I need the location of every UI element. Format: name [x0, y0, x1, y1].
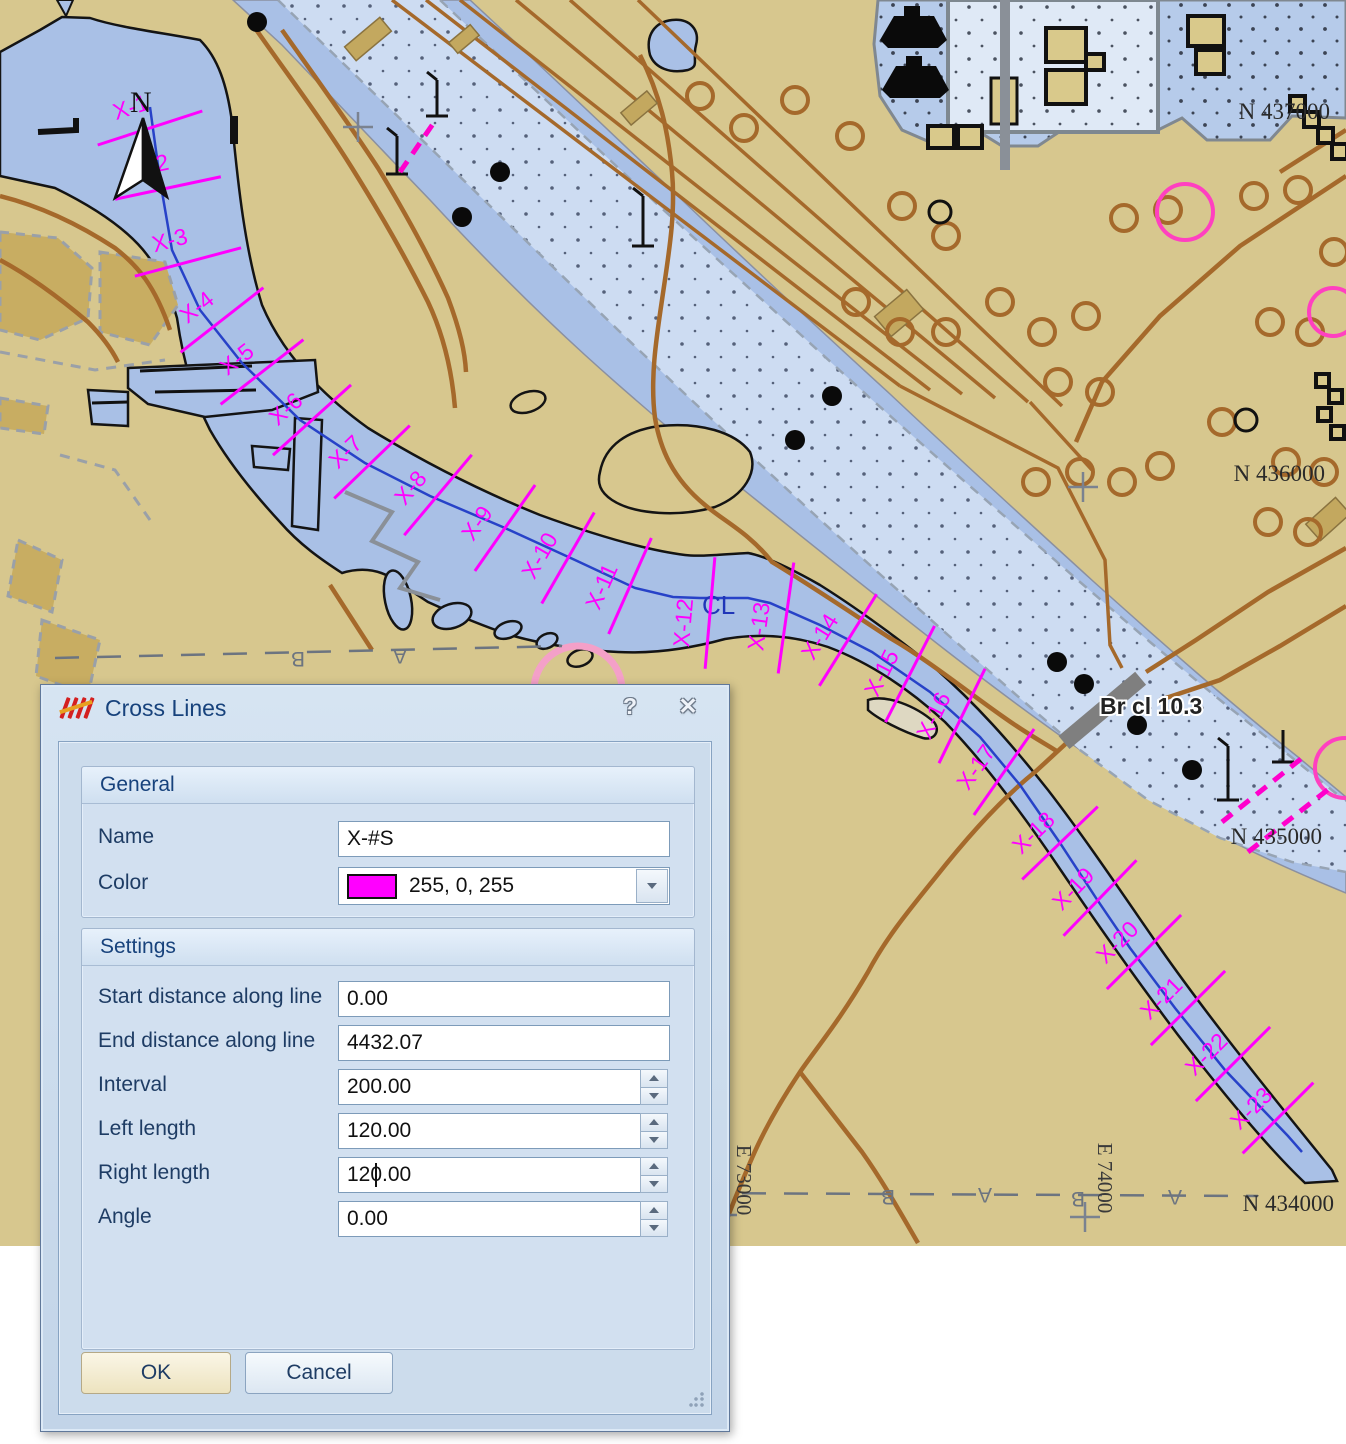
- ok-button[interactable]: OK: [81, 1352, 231, 1394]
- cancel-button[interactable]: Cancel: [245, 1352, 393, 1394]
- dialog-content: General Name Color 255, 0, 255 Settings …: [58, 741, 712, 1415]
- end-distance-input[interactable]: [339, 1029, 669, 1057]
- general-group: General Name Color 255, 0, 255: [81, 766, 695, 918]
- boundary-letter: B: [881, 1185, 895, 1208]
- dialog-title: Cross Lines: [105, 695, 226, 722]
- cross-lines-dialog: Cross Lines ? ✕ General Name Color 255, …: [40, 684, 730, 1432]
- left-length-input[interactable]: [339, 1117, 641, 1145]
- crossline-label: X-12: [668, 597, 698, 648]
- name-input[interactable]: [339, 825, 669, 853]
- bridge-clearance-label: Br cl 10.3: [1100, 693, 1202, 719]
- northing-grid-label: N 434000: [1243, 1191, 1334, 1216]
- name-row: Name: [82, 821, 694, 855]
- spin-up-icon: [649, 1119, 659, 1125]
- color-value: 255, 0, 255: [409, 874, 635, 898]
- spin-up-icon: [649, 1207, 659, 1213]
- boundary-letter: B: [291, 647, 305, 670]
- dialog-titlebar[interactable]: Cross Lines ? ✕: [41, 685, 729, 731]
- right-length-spinner[interactable]: [640, 1157, 668, 1193]
- easting-grid-label: E 74000: [1093, 1143, 1117, 1214]
- centerline-label: CL: [702, 590, 735, 620]
- color-swatch: [347, 874, 397, 899]
- name-field-wrap: [338, 821, 670, 857]
- easting-grid-label: E 73000: [732, 1145, 756, 1216]
- north-arrow-label: N: [130, 86, 152, 119]
- color-label: Color: [98, 871, 148, 895]
- color-row: Color 255, 0, 255: [82, 867, 694, 901]
- interval-input[interactable]: [339, 1073, 641, 1101]
- spin-down-icon: [649, 1181, 659, 1187]
- northing-grid-label: N 435000: [1231, 824, 1322, 849]
- spin-up-icon: [649, 1163, 659, 1169]
- boundary-letter: B: [1071, 1187, 1085, 1210]
- right-length-input[interactable]: [339, 1161, 641, 1189]
- left-length-spinner[interactable]: [640, 1113, 668, 1149]
- cross-lines-icon: [61, 694, 91, 722]
- color-dropdown-button[interactable]: [636, 869, 668, 903]
- settings-group-header: Settings: [82, 929, 694, 966]
- angle-label: Angle: [98, 1205, 152, 1229]
- name-label: Name: [98, 825, 154, 849]
- close-button[interactable]: ✕: [673, 691, 703, 721]
- settings-group: Settings Start distance along line End d…: [81, 928, 695, 1350]
- left-length-label: Left length: [98, 1117, 196, 1141]
- boundary-letter: A: [1168, 1185, 1182, 1208]
- general-group-header: General: [82, 767, 694, 804]
- spin-up-icon: [649, 1075, 659, 1081]
- northing-grid-label: N 436000: [1234, 461, 1325, 486]
- text-caret: [375, 1163, 377, 1187]
- resize-grip[interactable]: [689, 1392, 705, 1408]
- start-distance-label: Start distance along line: [98, 985, 322, 1009]
- spin-down-icon: [649, 1225, 659, 1231]
- angle-input[interactable]: [339, 1205, 641, 1233]
- northing-grid-label: N 437000: [1239, 99, 1330, 124]
- spin-down-icon: [649, 1093, 659, 1099]
- right-length-label: Right length: [98, 1161, 210, 1185]
- chevron-down-icon: [647, 883, 657, 889]
- interval-spinner[interactable]: [640, 1069, 668, 1105]
- help-button[interactable]: ?: [615, 691, 645, 721]
- angle-spinner[interactable]: [640, 1201, 668, 1237]
- interval-label: Interval: [98, 1073, 167, 1097]
- start-distance-input[interactable]: [339, 985, 669, 1013]
- spin-down-icon: [649, 1137, 659, 1143]
- end-distance-label: End distance along line: [98, 1029, 315, 1053]
- boundary-letter: A: [393, 644, 407, 667]
- color-combobox[interactable]: 255, 0, 255: [338, 867, 670, 905]
- boundary-letter: A: [978, 1183, 992, 1206]
